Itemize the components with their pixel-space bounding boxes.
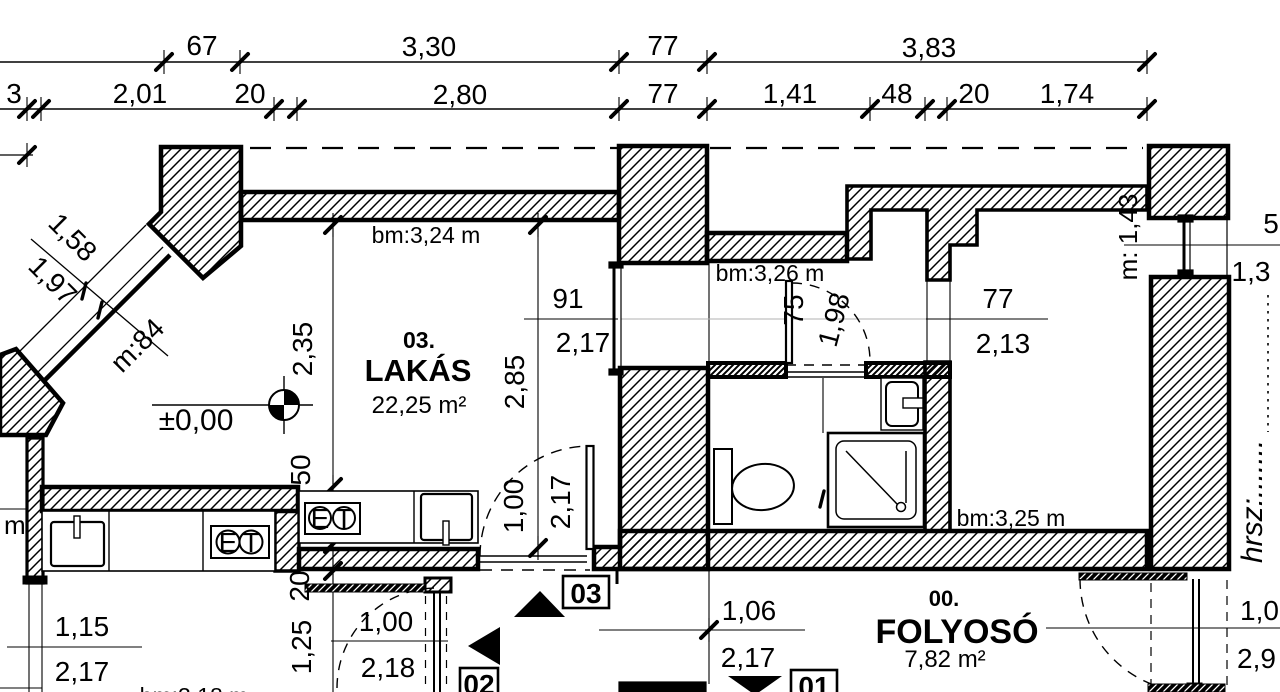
svg-text:±0,00: ±0,00	[159, 404, 234, 437]
svg-text:7,82 m²: 7,82 m²	[904, 646, 985, 673]
svg-text:T: T	[335, 503, 352, 534]
svg-text:48: 48	[881, 78, 912, 109]
svg-text:2,80: 2,80	[433, 79, 488, 110]
svg-text:1,00: 1,00	[359, 606, 414, 637]
svg-text:E: E	[311, 503, 330, 534]
svg-text:3,83: 3,83	[902, 32, 957, 63]
svg-text:67: 67	[186, 30, 217, 61]
svg-text:75: 75	[778, 294, 809, 325]
svg-text:1,15: 1,15	[55, 611, 110, 642]
svg-text:1,3: 1,3	[1232, 256, 1271, 287]
svg-text:00.: 00.	[929, 586, 960, 611]
svg-text:bm:3,24 m: bm:3,24 m	[372, 222, 481, 248]
svg-text:50: 50	[285, 454, 316, 485]
svg-text:bm:3,25 m: bm:3,25 m	[957, 505, 1066, 531]
svg-text:2,17: 2,17	[55, 656, 110, 687]
svg-text:1,06: 1,06	[722, 595, 777, 626]
svg-text:03: 03	[570, 578, 601, 609]
svg-text:1,06: 1,06	[1240, 595, 1280, 626]
svg-text:77: 77	[982, 283, 1013, 314]
svg-text:bm:3,18 m: bm:3,18 m	[140, 683, 249, 692]
svg-text:20: 20	[958, 78, 989, 109]
svg-text:1,41: 1,41	[763, 78, 818, 109]
svg-text:22,25 m²: 22,25 m²	[372, 392, 467, 419]
svg-text:m: m	[4, 510, 26, 540]
svg-text:2,17: 2,17	[721, 642, 776, 673]
svg-text:1,00: 1,00	[498, 479, 529, 534]
svg-text:77: 77	[647, 78, 678, 109]
svg-text:2,17: 2,17	[556, 327, 611, 358]
svg-text:1,25: 1,25	[286, 620, 317, 675]
svg-text:77: 77	[647, 30, 678, 61]
svg-text:02: 02	[463, 669, 494, 692]
svg-text:2,17: 2,17	[545, 475, 576, 530]
svg-text:5: 5	[1263, 208, 1279, 239]
svg-text:2,13: 2,13	[976, 328, 1031, 359]
svg-text:1,74: 1,74	[1040, 78, 1095, 109]
svg-text:2,85: 2,85	[499, 355, 530, 410]
svg-text:E: E	[219, 527, 238, 558]
svg-text:20: 20	[284, 570, 315, 601]
svg-text:2,01: 2,01	[113, 78, 168, 109]
svg-text:m: 1,43: m: 1,43	[1113, 194, 1143, 281]
svg-text:hrsz:.......: hrsz:.......	[1236, 440, 1269, 563]
svg-text:91: 91	[552, 283, 583, 314]
svg-text:2,35: 2,35	[287, 322, 318, 377]
svg-text:3,30: 3,30	[402, 31, 457, 62]
svg-text:2,9: 2,9	[1237, 643, 1276, 674]
svg-text:20: 20	[234, 78, 265, 109]
svg-text:LAKÁS: LAKÁS	[365, 353, 472, 388]
svg-text:bm:3,26 m: bm:3,26 m	[716, 260, 825, 286]
svg-text:03.: 03.	[403, 327, 435, 353]
svg-text:2,18: 2,18	[361, 652, 416, 683]
svg-text:T: T	[242, 527, 259, 558]
svg-text:3: 3	[6, 78, 22, 109]
svg-text:01: 01	[798, 671, 829, 692]
